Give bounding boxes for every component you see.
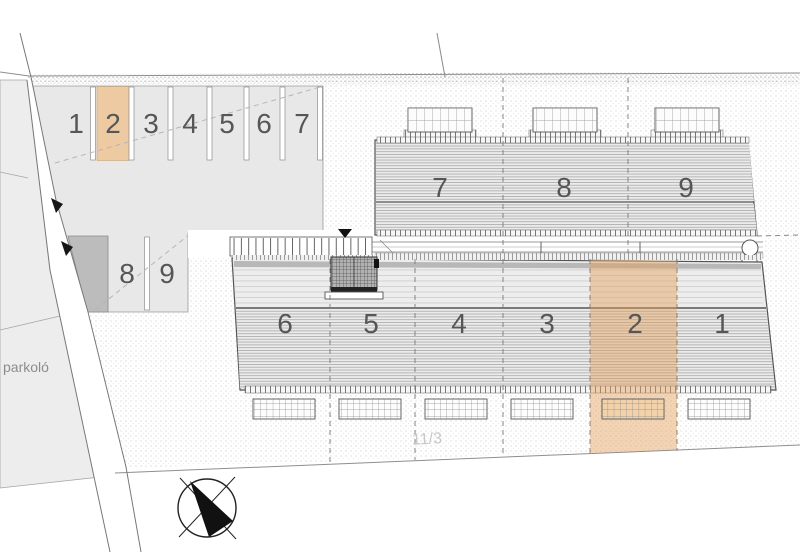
entry-stair-block: [325, 257, 383, 299]
unit-5-label[interactable]: 5: [363, 308, 379, 339]
building-south: [232, 255, 776, 393]
parking-space-4[interactable]: 4: [182, 108, 198, 139]
site-plan-drawing: parkoló 1 2 3 4 5 6 7 8 9: [0, 0, 800, 552]
parking-space-8[interactable]: 8: [119, 258, 135, 289]
unit-7-label[interactable]: 7: [432, 172, 448, 203]
parking-space-6[interactable]: 6: [256, 108, 272, 139]
door-bracket-icon: [374, 259, 379, 268]
tree-circle: [742, 240, 758, 256]
unit-1-label[interactable]: 1: [714, 308, 730, 339]
parking-space-5[interactable]: 5: [219, 108, 235, 139]
parking-space-3[interactable]: 3: [143, 108, 159, 139]
unit-3-label[interactable]: 3: [539, 308, 555, 339]
unit-2-label[interactable]: 2: [627, 308, 643, 339]
unit-9-label[interactable]: 9: [678, 172, 694, 203]
site-plan: parkoló 1 2 3 4 5 6 7 8 9: [0, 0, 800, 552]
unit-4-label[interactable]: 4: [451, 308, 467, 339]
parkolo-label: parkoló: [3, 359, 49, 375]
parking-divider-8-9: [145, 237, 150, 310]
unit-2-highlight[interactable]: [590, 259, 677, 453]
parcel-number-label: 11/3: [412, 430, 443, 449]
parking-space-7[interactable]: 7: [294, 108, 310, 139]
parking-space-9[interactable]: 9: [159, 258, 175, 289]
unit-8-label[interactable]: 8: [556, 172, 572, 203]
parking-space-1[interactable]: 1: [68, 108, 84, 139]
north-entrance-porches: [408, 108, 719, 132]
parking-space-2[interactable]: 2: [105, 108, 121, 139]
unit-6-label[interactable]: 6: [277, 308, 293, 339]
